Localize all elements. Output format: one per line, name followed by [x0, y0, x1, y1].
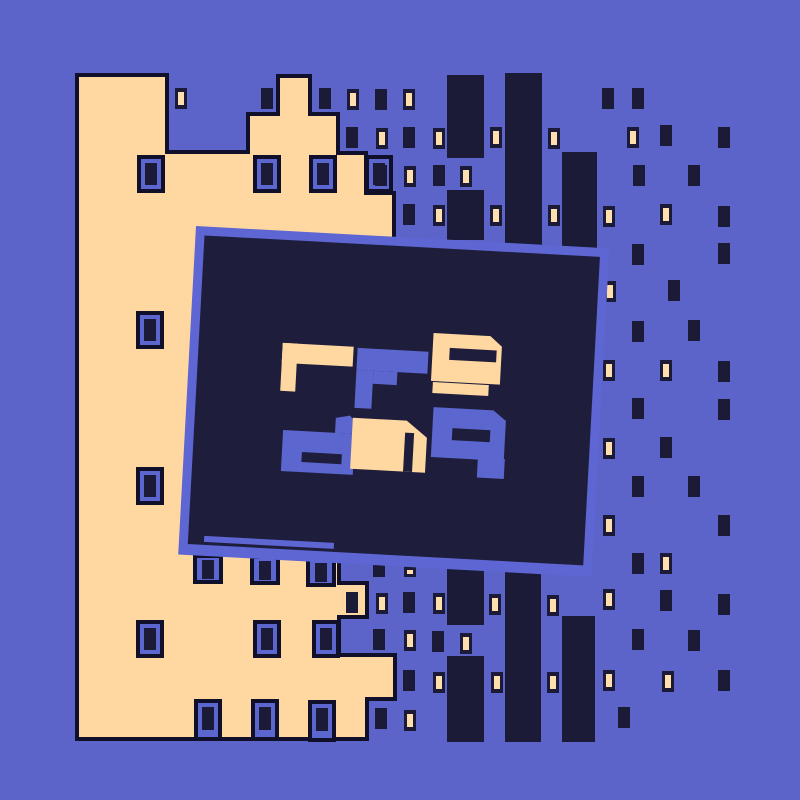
dark-tower	[562, 616, 595, 742]
unlit-window	[718, 515, 730, 536]
unlit-window	[718, 127, 730, 148]
lit-window-glow	[436, 676, 442, 689]
unlit-window	[403, 204, 415, 225]
dark-tower	[505, 73, 542, 245]
lit-window-glow	[379, 132, 385, 145]
framed-window-core	[261, 163, 273, 185]
glyph-f	[356, 348, 428, 374]
lit-window-glow	[436, 132, 442, 145]
unlit-window	[718, 399, 730, 420]
glyph-9-bottom-slot	[452, 428, 491, 442]
unlit-window	[602, 88, 614, 109]
unlit-window	[375, 165, 387, 186]
lit-window-glow	[493, 131, 499, 144]
lit-window-glow	[407, 634, 413, 647]
unlit-window	[632, 553, 644, 574]
lit-window-glow	[463, 170, 469, 183]
framed-window-core	[317, 163, 329, 185]
lit-window-glow	[606, 674, 612, 687]
unlit-window	[319, 88, 331, 109]
wall-dark-window	[346, 592, 358, 613]
dark-tower	[505, 570, 541, 742]
unlit-window	[432, 631, 444, 652]
unlit-window	[403, 127, 415, 148]
lit-window-glow	[663, 364, 669, 377]
unlit-window	[373, 565, 385, 577]
unlit-window	[261, 88, 273, 109]
unlit-window	[632, 629, 644, 650]
glyph-d	[281, 430, 355, 475]
dark-tower	[447, 75, 484, 158]
glyph-9-top-slot	[449, 348, 497, 363]
lit-window-glow	[463, 637, 469, 650]
unlit-window	[688, 630, 700, 651]
unlit-window	[632, 321, 644, 342]
framed-window-core	[144, 319, 156, 341]
unlit-window	[346, 127, 358, 148]
unlit-window	[433, 165, 445, 186]
lit-window-glow	[436, 209, 442, 222]
unlit-window	[632, 244, 644, 265]
unlit-window	[618, 707, 630, 728]
lit-window-glow	[606, 442, 612, 455]
lit-window-glow	[551, 209, 557, 222]
unlit-window	[688, 320, 700, 341]
framed-window-core	[320, 628, 332, 650]
lit-window-glow	[550, 676, 556, 689]
dark-tower	[447, 656, 484, 742]
night-city-illustration	[0, 0, 800, 800]
lit-window-glow	[663, 208, 669, 221]
lit-window-glow	[407, 170, 413, 183]
edge-window-core	[202, 560, 214, 579]
unlit-window	[688, 476, 700, 497]
lit-window-glow	[665, 675, 671, 688]
unlit-window	[375, 708, 387, 729]
lit-window-glow	[551, 132, 557, 145]
unlit-window	[718, 206, 730, 227]
framed-window-core	[144, 628, 156, 650]
lit-window-glow	[663, 557, 669, 570]
glyph-9-bottom	[477, 458, 505, 479]
glyph-r	[280, 343, 298, 392]
unlit-window	[668, 280, 680, 301]
unlit-window	[373, 629, 385, 650]
unlit-window	[718, 243, 730, 264]
glyph-f	[373, 371, 398, 385]
unlit-window	[632, 476, 644, 497]
framed-window-core	[144, 475, 156, 497]
edge-window-core	[259, 561, 271, 580]
lit-window-glow	[407, 570, 413, 574]
unlit-window	[403, 670, 415, 691]
lit-window-glow	[493, 209, 499, 222]
lit-window-glow	[606, 210, 612, 223]
notch-window-core	[202, 707, 214, 730]
dark-tower	[447, 568, 484, 625]
sign-panel	[178, 226, 609, 577]
dark-tower	[562, 152, 597, 252]
lit-window-glow	[606, 519, 612, 532]
lit-window-glow	[350, 93, 356, 106]
edge-window-core	[315, 563, 327, 582]
unlit-window	[688, 165, 700, 186]
lit-window-glow	[630, 131, 636, 144]
dark-tower	[447, 190, 484, 240]
lit-window-glow	[492, 598, 498, 611]
lit-window-glow	[550, 599, 556, 612]
lit-window-glow	[494, 676, 500, 689]
lit-window-glow	[407, 714, 413, 727]
glyph-f	[354, 370, 373, 409]
lit-window-glow	[406, 93, 412, 106]
unlit-window	[660, 437, 672, 458]
framed-window-core	[145, 163, 157, 185]
unlit-window	[718, 670, 730, 691]
unlit-window	[660, 590, 672, 611]
unlit-window	[632, 88, 644, 109]
unlit-window	[718, 361, 730, 382]
unlit-window	[403, 592, 415, 613]
lit-window-glow	[379, 597, 385, 610]
lit-window-glow	[606, 364, 612, 377]
city-scene	[0, 0, 800, 800]
lit-window-glow	[607, 285, 613, 298]
lit-window-glow	[606, 593, 612, 606]
lit-window-glow	[436, 597, 442, 610]
unlit-window	[718, 594, 730, 615]
unlit-window	[660, 125, 672, 146]
unlit-window	[375, 89, 387, 110]
notch-window-core	[316, 708, 328, 731]
notch-window-core	[259, 707, 271, 730]
unlit-window	[633, 165, 645, 186]
lit-window-glow	[178, 92, 184, 105]
sign-panel-face	[188, 235, 600, 565]
framed-window-core	[261, 628, 273, 650]
unlit-window	[632, 398, 644, 419]
